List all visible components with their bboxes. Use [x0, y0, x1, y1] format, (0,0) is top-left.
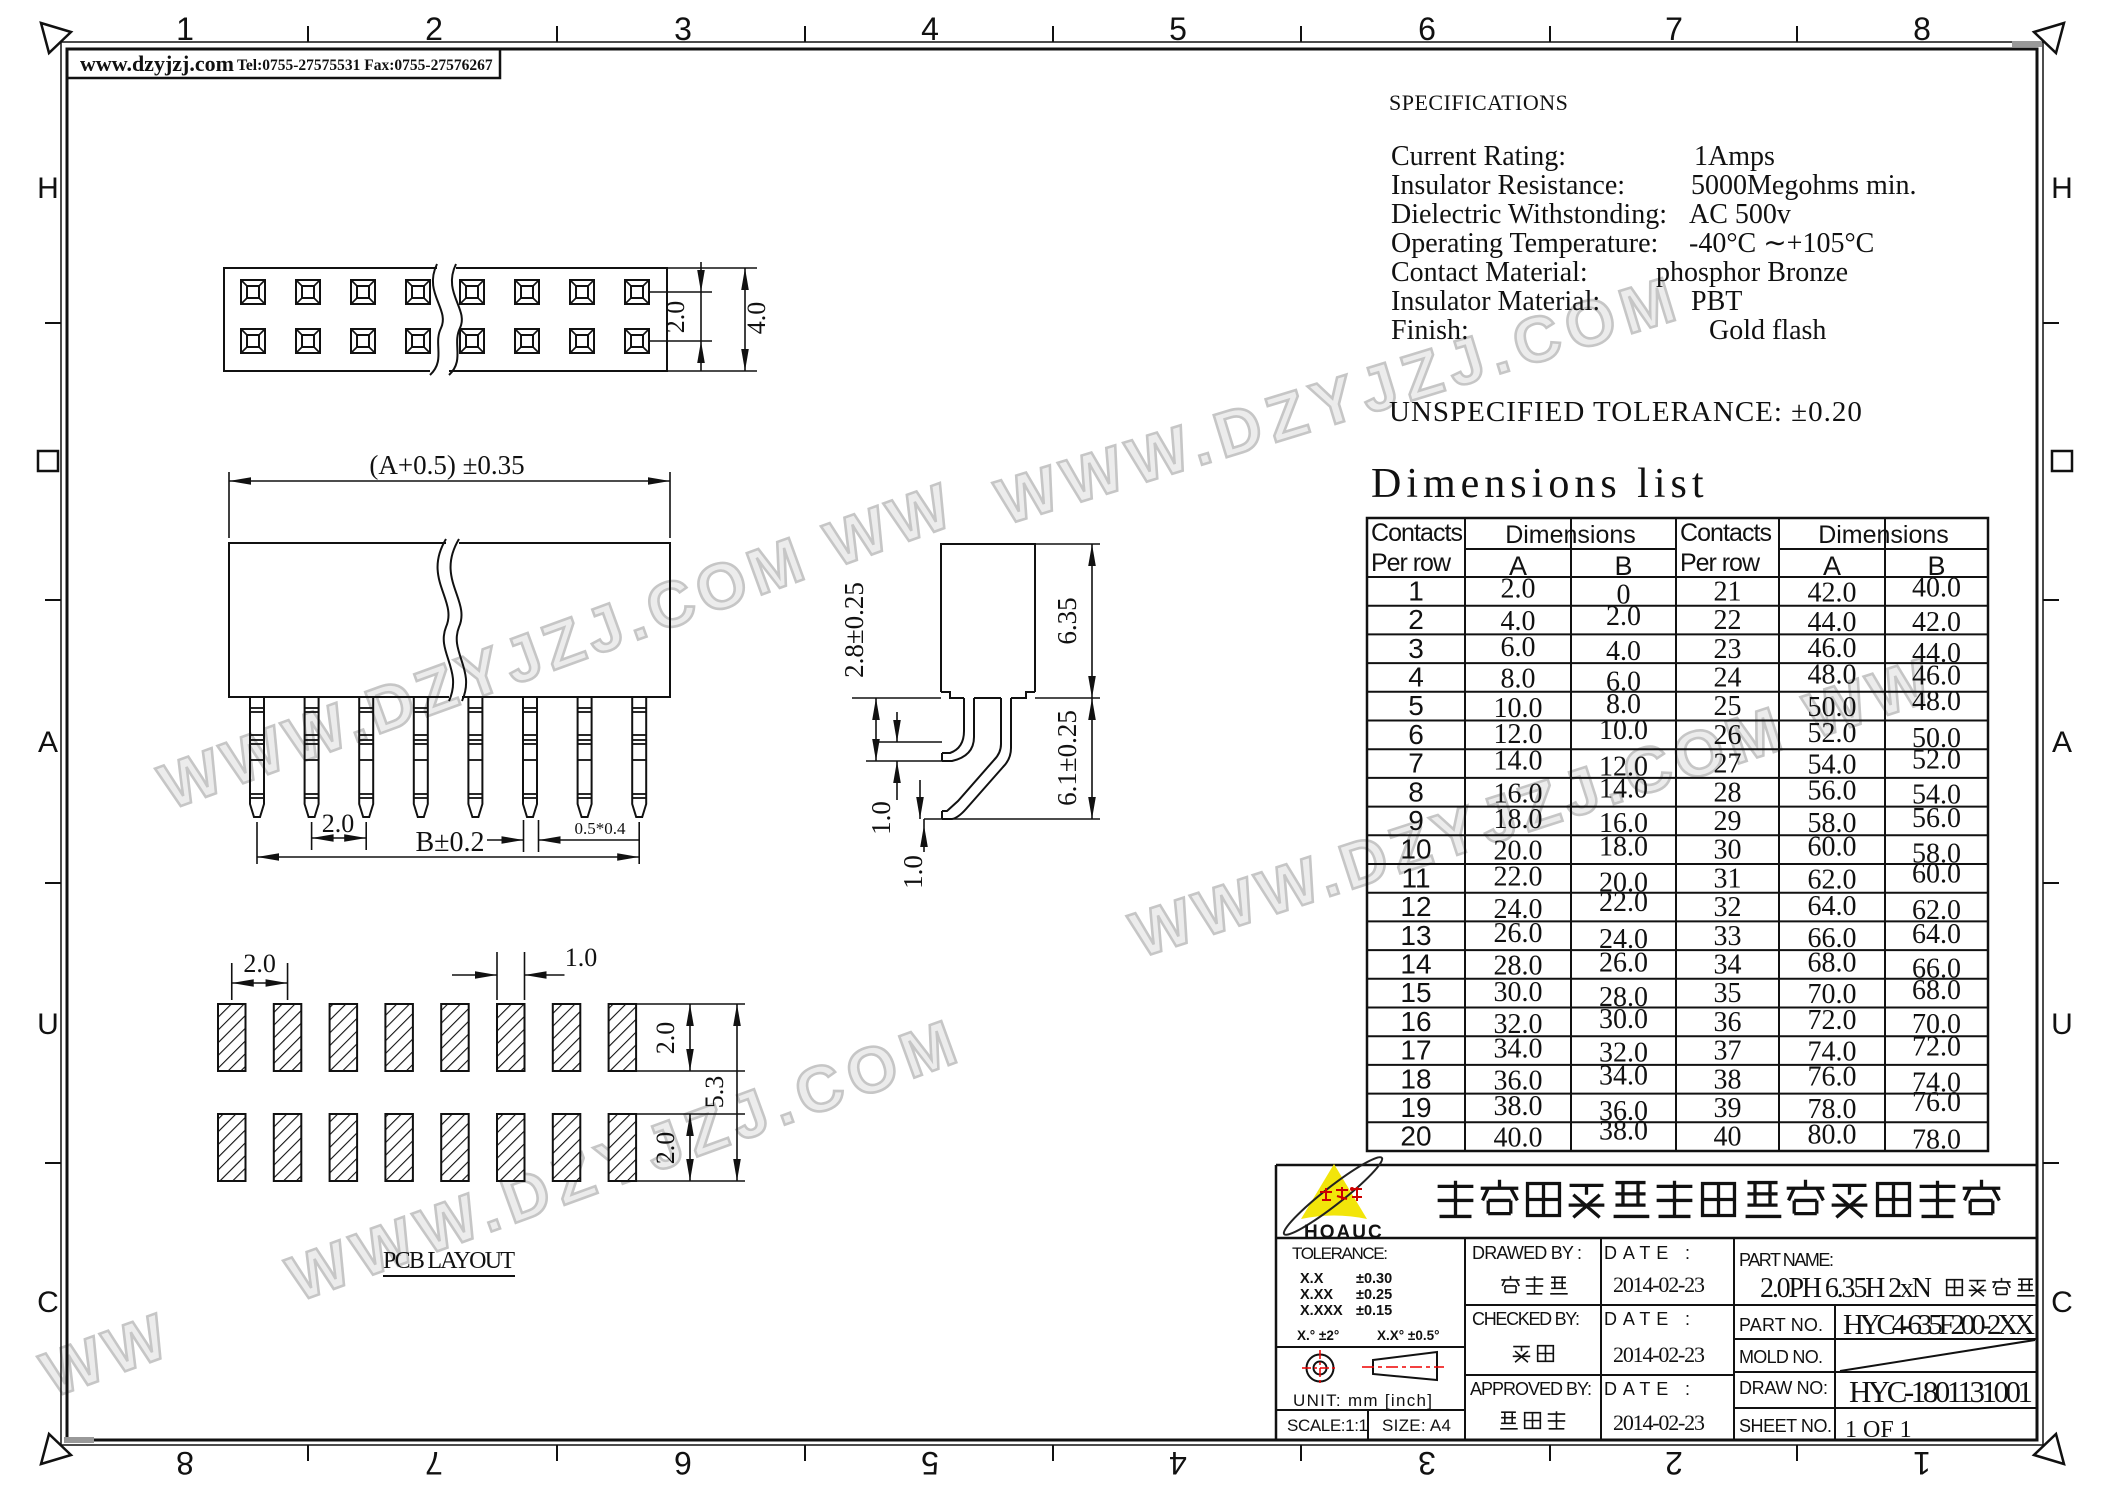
svg-text:Contacts: Contacts — [1371, 519, 1463, 547]
svg-text:10: 10 — [1400, 834, 1431, 865]
svg-text:C: C — [37, 1286, 59, 1319]
svg-text:40: 40 — [1714, 1122, 1742, 1153]
svg-text:SCALE:1:1: SCALE:1:1 — [1287, 1416, 1368, 1435]
svg-text:26.0: 26.0 — [1494, 918, 1543, 949]
svg-text:Dielectric Withstonding:: Dielectric Withstonding: — [1391, 199, 1667, 230]
svg-text:5.3: 5.3 — [700, 1076, 729, 1109]
svg-text:48.0: 48.0 — [1808, 659, 1857, 690]
svg-text:PBT: PBT — [1691, 286, 1742, 317]
svg-text:Contact Material:: Contact Material: — [1391, 257, 1588, 288]
svg-text:3: 3 — [674, 11, 692, 47]
svg-text:Operating Temperature:: Operating Temperature: — [1391, 228, 1658, 259]
svg-text:6.1±0.25: 6.1±0.25 — [1052, 710, 1082, 806]
svg-text:36: 36 — [1714, 1007, 1742, 1038]
svg-text:56.0: 56.0 — [1808, 775, 1857, 806]
svg-text:33: 33 — [1714, 921, 1742, 952]
svg-text:34.0: 34.0 — [1494, 1034, 1543, 1065]
svg-text:6: 6 — [1408, 719, 1424, 750]
svg-text:2: 2 — [1408, 604, 1424, 635]
svg-text:30: 30 — [1714, 835, 1742, 866]
svg-text:9: 9 — [1408, 805, 1424, 836]
svg-text:76.0: 76.0 — [1808, 1061, 1857, 1092]
svg-text:15: 15 — [1400, 977, 1431, 1008]
svg-text:40.0: 40.0 — [1494, 1123, 1543, 1154]
svg-text:2: 2 — [425, 11, 443, 47]
svg-text:TOLERANCE:: TOLERANCE: — [1292, 1244, 1388, 1263]
svg-text:5: 5 — [921, 1445, 939, 1481]
svg-text:A: A — [2052, 726, 2072, 759]
svg-text:4.0: 4.0 — [742, 302, 771, 335]
svg-text:38.0: 38.0 — [1494, 1091, 1543, 1122]
svg-text:30.0: 30.0 — [1599, 1004, 1648, 1035]
svg-text:32: 32 — [1714, 892, 1742, 923]
svg-text:5000Megohms min.: 5000Megohms min. — [1691, 170, 1917, 201]
svg-text:DATE :: DATE : — [1604, 1309, 1690, 1329]
svg-text:56.0: 56.0 — [1912, 803, 1961, 834]
svg-text:4: 4 — [1408, 661, 1424, 692]
svg-text:X.XX: X.XX — [1300, 1287, 1333, 1303]
svg-text:2.0PH 6.35H 2xN: 2.0PH 6.35H 2xN — [1760, 1273, 1932, 1304]
svg-text:DATE :: DATE : — [1604, 1243, 1690, 1263]
svg-text:6.35: 6.35 — [1052, 597, 1082, 644]
svg-text:2: 2 — [1665, 1445, 1683, 1481]
svg-text:78.0: 78.0 — [1912, 1125, 1961, 1156]
svg-text:22.0: 22.0 — [1599, 887, 1648, 918]
svg-text:35: 35 — [1714, 978, 1742, 1009]
svg-text:2014-02-23: 2014-02-23 — [1613, 1272, 1705, 1297]
svg-text:4: 4 — [921, 11, 939, 47]
svg-text:UNSPECIFIED TOLERANCE: ±0.20: UNSPECIFIED TOLERANCE: ±0.20 — [1389, 396, 1863, 428]
svg-text:18.0: 18.0 — [1599, 832, 1648, 863]
svg-text:42.0: 42.0 — [1808, 577, 1857, 608]
svg-text:72.0: 72.0 — [1808, 1005, 1857, 1036]
svg-text:16: 16 — [1400, 1006, 1431, 1037]
svg-text:1: 1 — [176, 11, 194, 47]
svg-text:1.0: 1.0 — [866, 801, 896, 835]
svg-text:2.0: 2.0 — [661, 301, 690, 334]
svg-text:60.0: 60.0 — [1912, 858, 1961, 889]
svg-text:HYC-1801131001: HYC-1801131001 — [1849, 1374, 2033, 1409]
svg-text:21: 21 — [1714, 576, 1742, 607]
svg-text:X.° ±2°: X.° ±2° — [1297, 1328, 1339, 1343]
svg-text:31: 31 — [1714, 863, 1742, 894]
svg-text:±0.25: ±0.25 — [1356, 1287, 1392, 1303]
svg-text:38.0: 38.0 — [1599, 1116, 1648, 1147]
svg-text:7: 7 — [1665, 11, 1683, 47]
svg-text:48.0: 48.0 — [1912, 686, 1961, 717]
svg-text:76.0: 76.0 — [1912, 1087, 1961, 1118]
svg-text:26.0: 26.0 — [1599, 947, 1648, 978]
svg-text:Dimensions: Dimensions — [1818, 521, 1949, 549]
svg-text:4: 4 — [1169, 1445, 1187, 1481]
svg-text:6.0: 6.0 — [1501, 632, 1536, 663]
svg-text:U: U — [2051, 1008, 2073, 1041]
svg-text:SIZE: A4: SIZE: A4 — [1382, 1416, 1451, 1435]
svg-text:7: 7 — [425, 1445, 443, 1481]
svg-text:18: 18 — [1400, 1063, 1431, 1094]
svg-text:8: 8 — [176, 1445, 194, 1481]
svg-text:8: 8 — [1408, 776, 1424, 807]
svg-text:68.0: 68.0 — [1808, 947, 1857, 978]
svg-text:Dimensions: Dimensions — [1505, 521, 1636, 549]
svg-text:14.0: 14.0 — [1599, 773, 1648, 804]
svg-text:39: 39 — [1714, 1093, 1742, 1124]
svg-text:Per row: Per row — [1371, 549, 1452, 577]
svg-text:PCB LAYOUT: PCB LAYOUT — [383, 1248, 515, 1274]
svg-text:52.0: 52.0 — [1912, 745, 1961, 776]
svg-text:6: 6 — [674, 1445, 692, 1481]
svg-text:34: 34 — [1714, 949, 1742, 980]
svg-text:4.0: 4.0 — [1606, 636, 1641, 667]
svg-text:±0.30: ±0.30 — [1356, 1271, 1392, 1287]
svg-text:1: 1 — [1408, 575, 1424, 606]
svg-text:A: A — [38, 726, 58, 759]
svg-text:68.0: 68.0 — [1912, 975, 1961, 1006]
svg-text:34.0: 34.0 — [1599, 1060, 1648, 1091]
svg-text:HYC4-635F200-2XX: HYC4-635F200-2XX — [1843, 1309, 2035, 1341]
svg-text:11: 11 — [1401, 862, 1430, 893]
svg-text:UNIT: mm [inch]: UNIT: mm [inch] — [1293, 1391, 1432, 1410]
svg-text:H: H — [2051, 172, 2073, 205]
svg-text:Tel:0755-27575531 Fax:0755-27: Tel:0755-27575531 Fax:0755-27576267 — [237, 57, 493, 74]
svg-text:80.0: 80.0 — [1808, 1120, 1857, 1151]
svg-text:37: 37 — [1714, 1036, 1742, 1067]
svg-text:40.0: 40.0 — [1912, 572, 1961, 603]
svg-text:2.0: 2.0 — [1501, 573, 1536, 604]
svg-text:26: 26 — [1714, 720, 1742, 751]
svg-text:18.0: 18.0 — [1494, 804, 1543, 835]
svg-text:8.0: 8.0 — [1501, 663, 1536, 694]
svg-text:60.0: 60.0 — [1808, 832, 1857, 863]
svg-text:Insulator Material:: Insulator Material: — [1391, 286, 1600, 317]
svg-text:1Amps: 1Amps — [1694, 141, 1775, 172]
svg-text:7: 7 — [1408, 748, 1424, 779]
svg-text:5: 5 — [1169, 11, 1187, 47]
svg-text:12: 12 — [1400, 891, 1431, 922]
svg-text:Current Rating:: Current Rating: — [1391, 141, 1566, 172]
svg-text:X.X° ±0.5°: X.X° ±0.5° — [1377, 1328, 1439, 1343]
svg-text:2014-02-23: 2014-02-23 — [1613, 1410, 1705, 1435]
svg-text:1 OF 1: 1 OF 1 — [1845, 1417, 1912, 1443]
svg-text:PART NO.: PART NO. — [1739, 1315, 1823, 1335]
svg-text:3: 3 — [1418, 1445, 1436, 1481]
svg-text:72.0: 72.0 — [1912, 1032, 1961, 1063]
svg-text:22.0: 22.0 — [1494, 861, 1543, 892]
svg-text:PART NAME:: PART NAME: — [1739, 1250, 1834, 1270]
svg-text:27: 27 — [1714, 749, 1742, 780]
svg-text:2.0: 2.0 — [243, 949, 276, 978]
svg-text:19: 19 — [1400, 1092, 1431, 1123]
svg-text:10.0: 10.0 — [1599, 715, 1648, 746]
svg-text:14.0: 14.0 — [1494, 746, 1543, 777]
svg-text:H: H — [37, 172, 59, 205]
svg-text:14: 14 — [1400, 948, 1431, 979]
svg-text:MOLD NO.: MOLD NO. — [1739, 1347, 1823, 1367]
svg-text:17: 17 — [1400, 1035, 1431, 1066]
svg-text:Gold flash: Gold flash — [1709, 315, 1826, 346]
svg-text:29: 29 — [1714, 806, 1742, 837]
svg-text:1.0: 1.0 — [898, 855, 928, 889]
svg-text:SHEET NO.: SHEET NO. — [1739, 1416, 1832, 1436]
svg-text:0.5*0.4: 0.5*0.4 — [575, 819, 627, 838]
svg-text:2014-02-23: 2014-02-23 — [1613, 1342, 1705, 1367]
svg-text:X.X: X.X — [1300, 1271, 1324, 1287]
svg-text:52.0: 52.0 — [1808, 718, 1857, 749]
svg-text:38: 38 — [1714, 1064, 1742, 1095]
svg-text:1: 1 — [1913, 1445, 1931, 1481]
svg-text:8: 8 — [1913, 11, 1931, 47]
svg-text:B±0.2: B±0.2 — [415, 827, 484, 858]
svg-text:Dimensions list: Dimensions list — [1371, 461, 1709, 507]
svg-text:Insulator Resistance:: Insulator Resistance: — [1391, 170, 1625, 201]
svg-text:Finish:: Finish: — [1391, 315, 1469, 346]
svg-text:Per row: Per row — [1680, 549, 1761, 577]
svg-text:64.0: 64.0 — [1808, 891, 1857, 922]
svg-text:2.0: 2.0 — [651, 1132, 680, 1165]
svg-text:DRAWED BY :: DRAWED BY : — [1472, 1243, 1582, 1263]
svg-text:24: 24 — [1714, 662, 1742, 693]
svg-text:±0.15: ±0.15 — [1356, 1303, 1392, 1319]
svg-text:www.dzyjzj.com: www.dzyjzj.com — [80, 51, 234, 76]
svg-text:Contacts: Contacts — [1680, 519, 1772, 547]
svg-text:3: 3 — [1408, 633, 1424, 664]
svg-text:2.0: 2.0 — [1606, 601, 1641, 632]
svg-text:42.0: 42.0 — [1912, 607, 1961, 638]
svg-text:CHECKED BY:: CHECKED BY: — [1472, 1309, 1580, 1329]
svg-text:APPROVED BY:: APPROVED BY: — [1470, 1379, 1592, 1399]
svg-text:DRAW NO:: DRAW NO: — [1739, 1378, 1828, 1398]
svg-text:23: 23 — [1714, 634, 1742, 665]
svg-text:64.0: 64.0 — [1912, 919, 1961, 950]
svg-text:2.8±0.25: 2.8±0.25 — [839, 582, 869, 678]
svg-text:30.0: 30.0 — [1494, 977, 1543, 1008]
svg-text:-40°C ∼+105°C: -40°C ∼+105°C — [1689, 228, 1874, 259]
svg-text:SPECIFICATIONS: SPECIFICATIONS — [1389, 90, 1568, 115]
svg-text:X.XXX: X.XXX — [1300, 1303, 1343, 1319]
svg-text:HOAUC: HOAUC — [1304, 1222, 1384, 1243]
svg-text:DATE :: DATE : — [1604, 1379, 1690, 1399]
svg-text:2.0: 2.0 — [322, 809, 355, 838]
svg-text:C: C — [2051, 1286, 2073, 1319]
svg-text:5: 5 — [1408, 690, 1424, 721]
svg-text:phosphor Bronze: phosphor Bronze — [1656, 257, 1848, 288]
svg-text:25: 25 — [1714, 691, 1742, 722]
svg-text:13: 13 — [1400, 920, 1431, 951]
svg-text:6: 6 — [1418, 11, 1436, 47]
svg-text:AC 500v: AC 500v — [1689, 199, 1791, 230]
svg-text:28: 28 — [1714, 777, 1742, 808]
svg-text:2.0: 2.0 — [651, 1022, 680, 1055]
svg-text:22: 22 — [1714, 605, 1742, 636]
svg-text:20: 20 — [1400, 1121, 1431, 1152]
svg-text:(A+0.5) ±0.35: (A+0.5) ±0.35 — [369, 450, 524, 480]
svg-text:1.0: 1.0 — [565, 943, 598, 972]
svg-text:B: B — [1614, 551, 1632, 581]
svg-text:U: U — [37, 1008, 59, 1041]
